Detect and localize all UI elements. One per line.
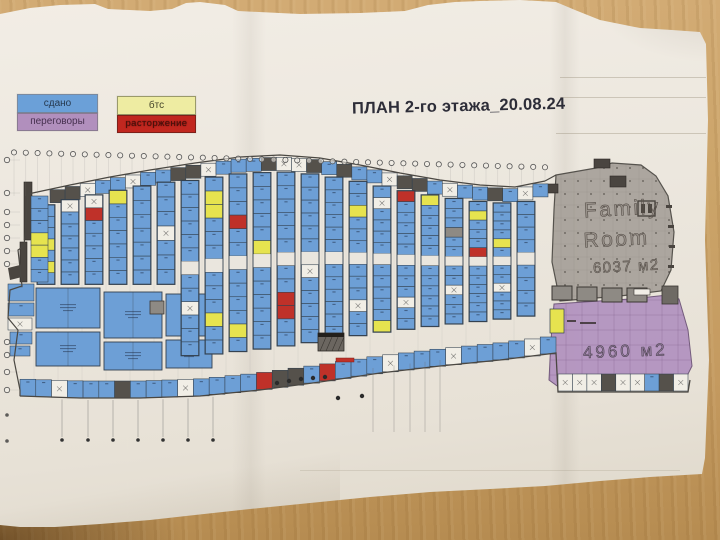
legend-label-negotiations: переговоры [30, 117, 85, 127]
family-room-labels: Family Room 6037 м2 [581, 195, 664, 277]
family-room-area-label: 6037 м2 [593, 256, 661, 276]
family-room-label-line2: Room [583, 226, 650, 252]
paper-rule-line [300, 470, 680, 471]
grid-lines [34, 159, 514, 381]
plan-title: ПЛАН 2-го этажа_20.08.24 [352, 94, 582, 118]
shop-strips [37, 172, 535, 356]
legend-item-rented: сдано [17, 94, 98, 113]
building-outline [8, 155, 690, 398]
legend-item-bts: бтс [117, 96, 196, 115]
floor-plan-sheet: сдано бтс переговоры расторжение ПЛАН 2-… [0, 0, 720, 540]
family-room-area [546, 159, 680, 305]
purple-area-label: 4960 м2 [583, 340, 668, 362]
legend-label-rented: сдано [44, 99, 71, 109]
legend-item-termination: расторжение [117, 115, 196, 133]
family-room-label-line1: Family [583, 195, 661, 222]
paper-crease [232, 0, 266, 540]
paper-rule-line [560, 77, 706, 78]
perimeter-shop-rows [20, 157, 688, 398]
large-halls [36, 288, 212, 370]
stairs-and-details [318, 333, 354, 362]
legend-item-negotiations: переговоры [17, 113, 98, 131]
grid-axis-markers [4, 150, 547, 443]
floor-plan-drawing: Family Room 6037 м2 4960 м2 [0, 0, 720, 540]
paper-rule-line [556, 133, 706, 134]
legend-label-termination: расторжение [125, 119, 187, 129]
photo-scene: сдано бтс переговоры расторжение ПЛАН 2-… [0, 0, 720, 540]
legend-label-bts: бтс [149, 101, 164, 111]
negotiation-area [546, 286, 696, 392]
paper-rule-line [560, 97, 706, 98]
paper-crease [550, 0, 580, 540]
left-wing-units [8, 182, 48, 356]
